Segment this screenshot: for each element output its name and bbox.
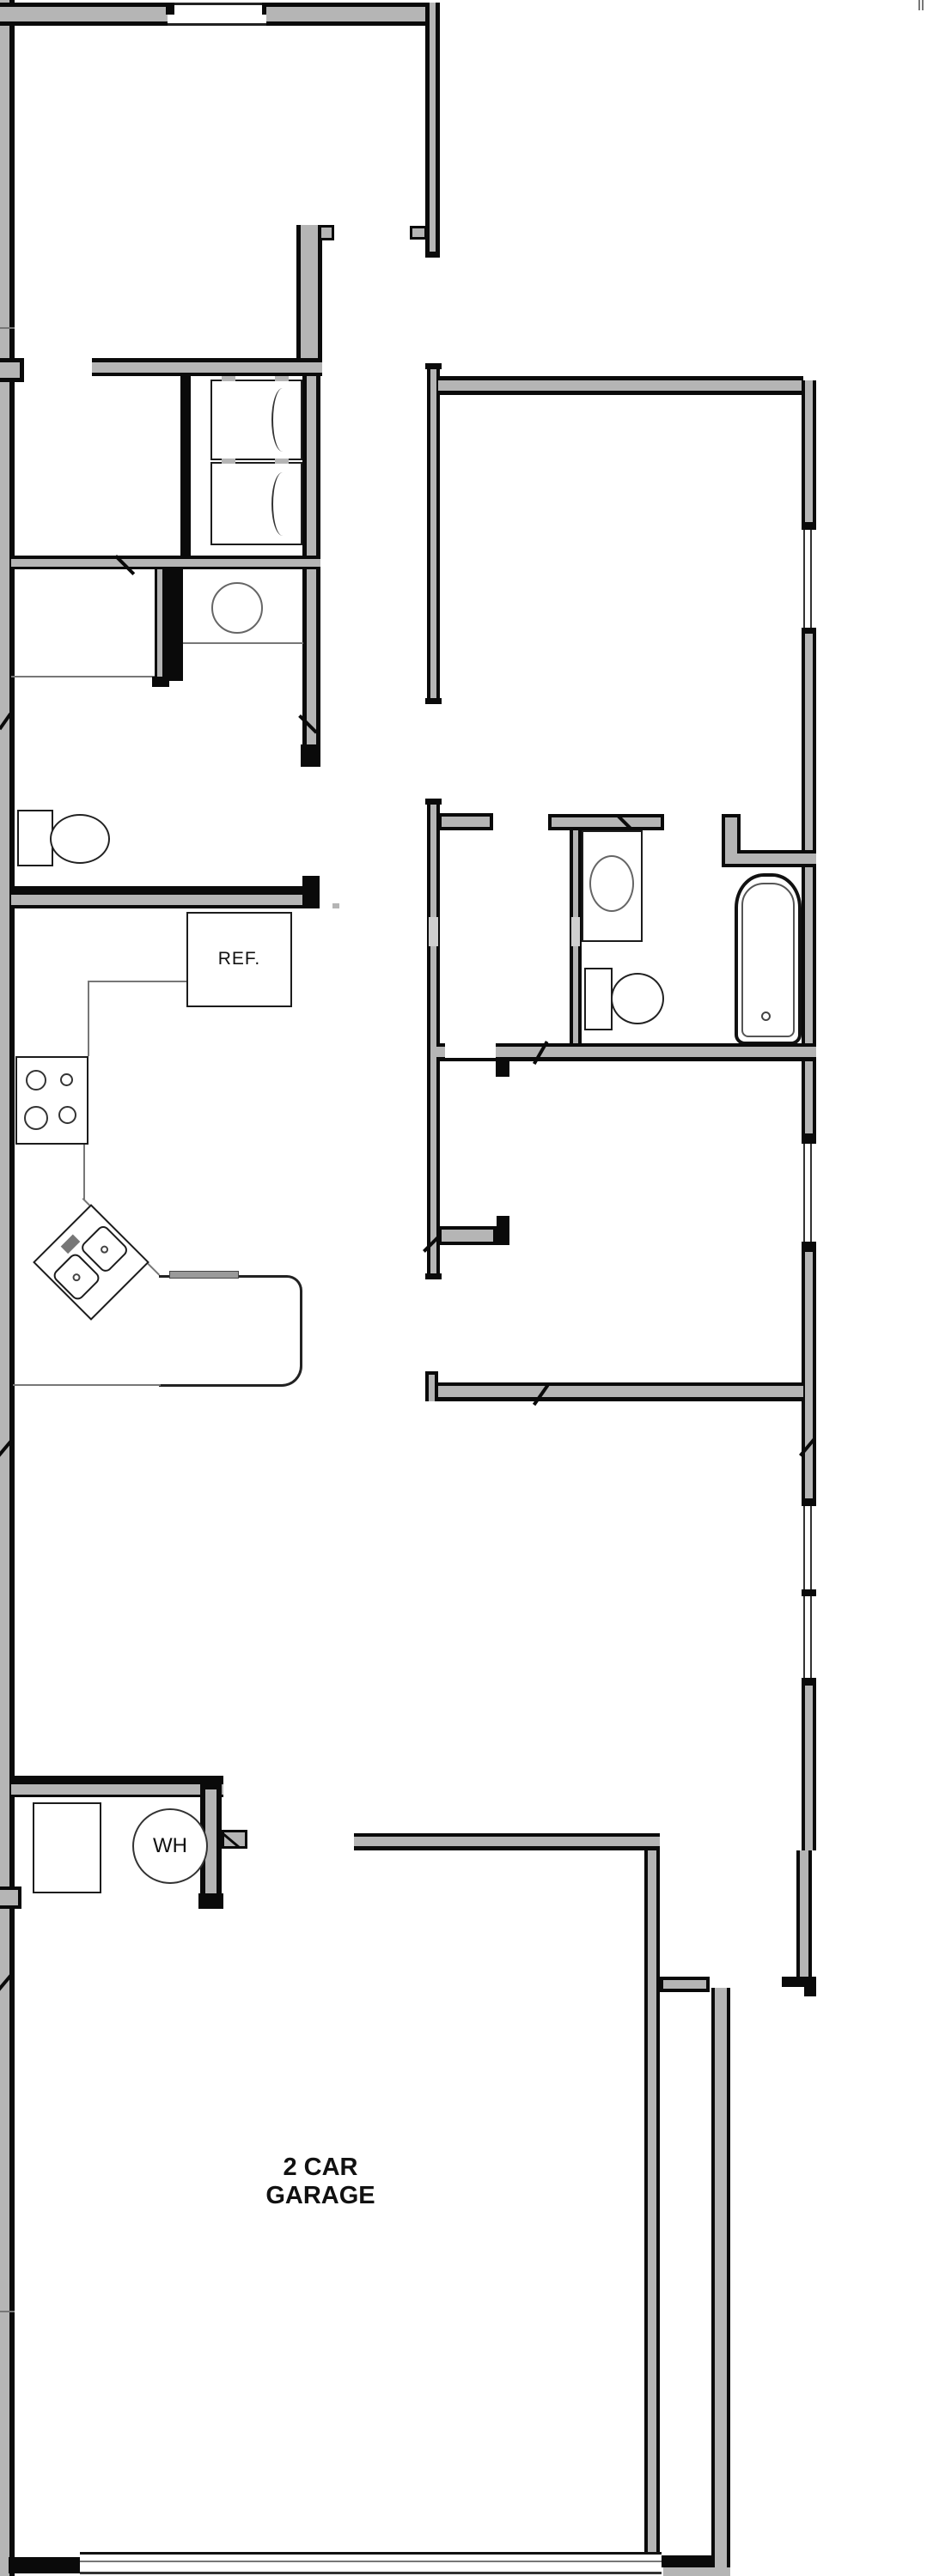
wall-cap — [425, 799, 442, 805]
window-jamb — [802, 1498, 816, 1506]
door-jamb — [497, 1216, 509, 1245]
counter-line — [88, 981, 89, 1056]
burner — [60, 1073, 73, 1086]
bathtub-drain — [761, 1012, 771, 1021]
wall-stub — [660, 1977, 710, 1992]
toilet-bowl — [50, 814, 110, 864]
bath1-left-wall — [165, 569, 183, 681]
appliance-tab — [222, 459, 235, 464]
tub-wall — [737, 850, 816, 867]
wall-joint-line — [0, 2311, 15, 2312]
pocket-door — [429, 917, 438, 946]
closet-shelf-line — [11, 676, 155, 677]
garage-door-line — [80, 2561, 662, 2562]
bedroom1-right-wall — [425, 3, 440, 258]
wall-joint-line — [0, 327, 15, 329]
washing-machine — [33, 1802, 101, 1893]
exterior-wall-top — [0, 3, 168, 26]
kitchen-top-wall — [11, 886, 318, 908]
window-bedroom2 — [803, 1144, 812, 1243]
toilet-bowl — [611, 973, 664, 1024]
counter-line — [88, 981, 186, 982]
toilet-tank — [17, 810, 53, 866]
wall-corner-fill — [663, 2567, 730, 2576]
range-stove — [15, 1056, 88, 1145]
corner-kitchen-sink — [33, 1204, 149, 1321]
counter-line — [83, 1145, 85, 1200]
closet2-wall-stub — [438, 813, 493, 830]
pocket-door — [571, 917, 580, 946]
hall-right-wall — [427, 799, 440, 1279]
burner — [58, 1106, 76, 1124]
living-left-wall — [427, 363, 440, 704]
garage-top-wall — [354, 1833, 660, 1850]
washer-door-arc — [271, 388, 294, 452]
window-jamb — [166, 3, 174, 15]
vanity-sink — [589, 855, 634, 912]
exterior-side-wall — [711, 1988, 730, 2576]
water-heater-label: WH — [132, 1834, 208, 1858]
wall-cap — [425, 698, 442, 704]
exterior-wall-right — [796, 1850, 812, 1979]
window-jamb — [802, 522, 816, 530]
toilet-tank — [584, 968, 613, 1030]
refrigerator-label: REF. — [186, 949, 292, 969]
door-jamb — [410, 226, 427, 240]
exterior-wall-right — [802, 380, 816, 524]
floor-edge-line — [13, 1384, 161, 1386]
burner — [24, 1106, 48, 1130]
tick-mark — [922, 0, 924, 10]
garage-label: 2 CAR GARAGE — [230, 2154, 411, 2210]
door-jamb — [0, 1886, 21, 1909]
exterior-wall-left — [0, 0, 15, 2576]
wall-corner — [425, 1371, 438, 1401]
window-jamb — [802, 1242, 816, 1252]
window-jamb — [802, 1678, 816, 1686]
wall-corner — [662, 2555, 715, 2567]
burner — [26, 1070, 46, 1091]
wall-cap — [425, 363, 442, 369]
window-top — [168, 3, 266, 26]
door-jamb — [0, 358, 24, 382]
wall-cap — [198, 1893, 223, 1909]
living-top-wall — [438, 376, 803, 395]
bedroom2-closet-wall — [438, 1226, 497, 1245]
faucet — [61, 1234, 81, 1254]
closet-wall — [296, 225, 322, 376]
bedroom3-top-wall — [438, 1382, 803, 1401]
hall-top-wall — [11, 556, 320, 569]
tick-mark — [332, 903, 339, 908]
appliance-tab — [275, 459, 289, 464]
wall-cap — [804, 1977, 816, 1996]
counter-peninsula — [159, 1275, 302, 1387]
exterior-wall-right — [802, 1686, 816, 1850]
window-jamb — [802, 1589, 816, 1596]
garage-door — [80, 2552, 662, 2574]
window-living — [803, 530, 812, 635]
window-bedroom3-a — [803, 1506, 812, 1591]
appliance-tab — [275, 376, 289, 381]
closet-right-wall — [155, 569, 165, 677]
vanity-counter-line — [183, 642, 303, 644]
exterior-wall-right — [802, 1252, 816, 1500]
door-jamb — [319, 225, 334, 240]
dryer-door-arc — [271, 472, 294, 536]
wall-cap — [301, 744, 320, 767]
bath2-top-wall — [548, 814, 664, 830]
appliance-tab — [222, 376, 235, 381]
dishwasher — [169, 1271, 239, 1279]
garage-door-jamb — [222, 1830, 247, 1849]
wh-closet-top-wall — [11, 1776, 223, 1797]
door-opening — [445, 1043, 496, 1058]
bathroom-sink — [211, 582, 263, 634]
window-bedroom3-b — [803, 1596, 812, 1680]
window-jamb — [802, 1133, 816, 1144]
door-jamb — [496, 1058, 509, 1077]
floor-plan: REF. — [0, 0, 927, 2576]
exterior-wall-top — [266, 3, 440, 26]
bedroom1-bottom-wall — [92, 358, 322, 376]
wall-cap — [425, 1273, 442, 1279]
laundry-left-wall — [180, 376, 191, 556]
wall-mark — [9, 2523, 15, 2537]
wall-corner — [9, 2557, 80, 2573]
wall-cap — [302, 876, 320, 908]
tick-mark — [918, 0, 920, 10]
garage-east-wall — [644, 1850, 660, 2563]
wall-cap — [425, 252, 440, 258]
